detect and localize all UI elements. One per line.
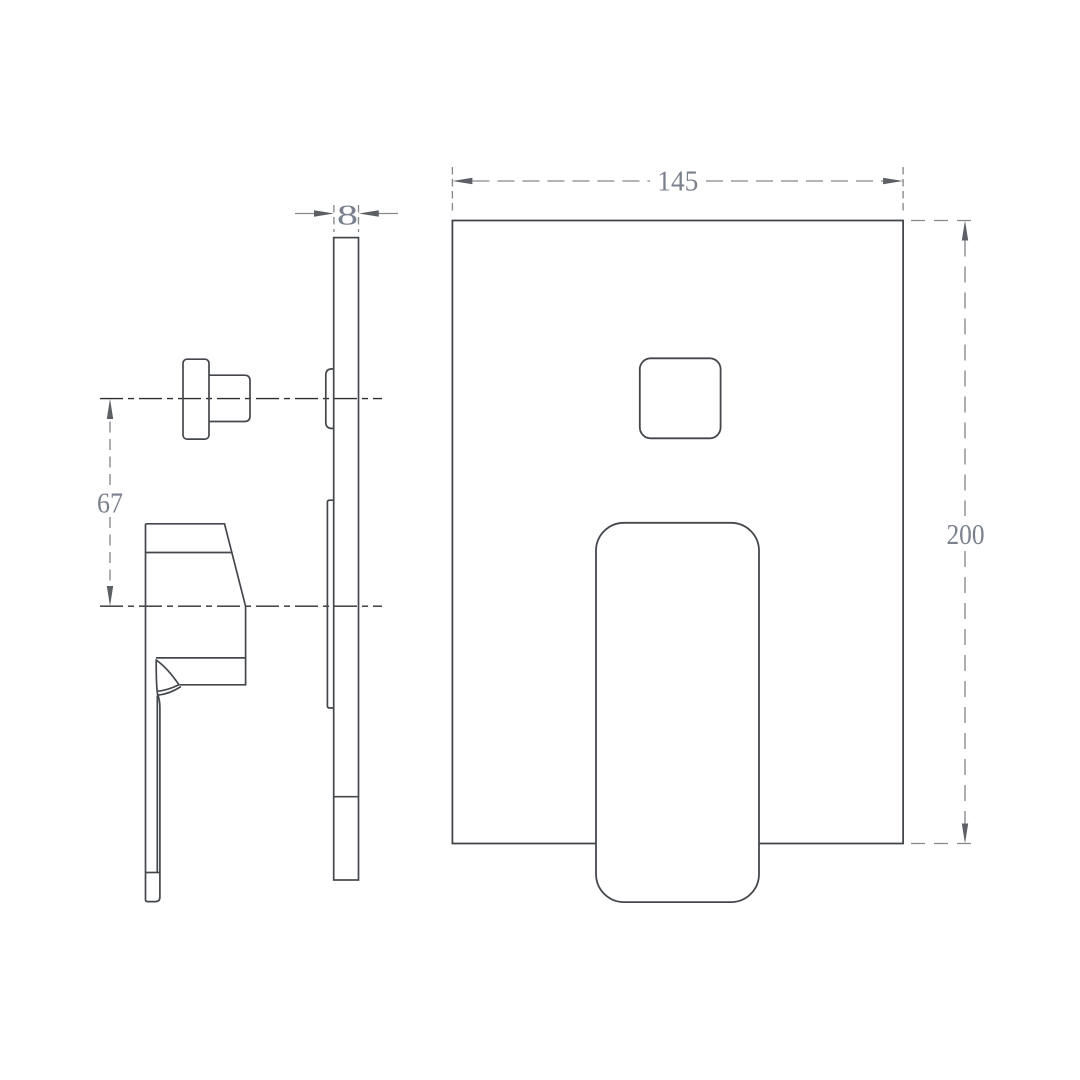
svg-text:67: 67: [97, 488, 123, 520]
svg-text:145: 145: [657, 166, 698, 198]
svg-text:8: 8: [337, 200, 358, 232]
svg-text:200: 200: [947, 519, 985, 551]
